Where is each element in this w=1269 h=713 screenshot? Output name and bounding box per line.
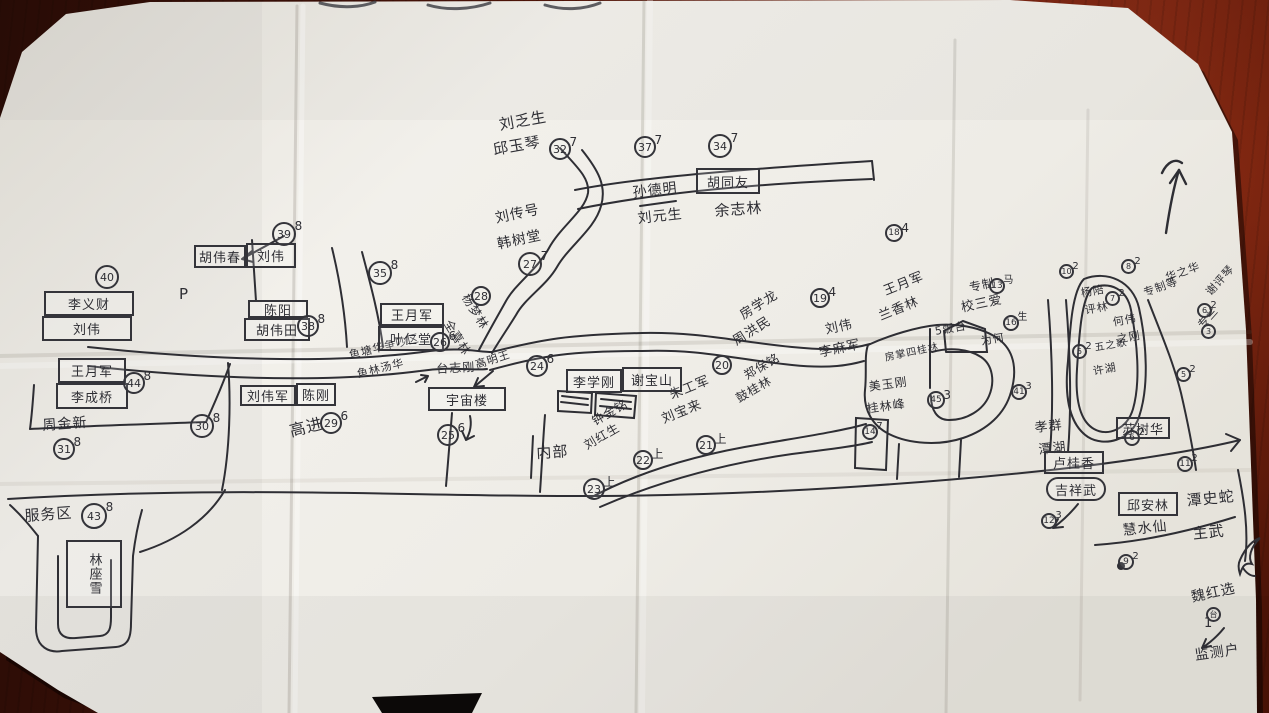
map-label: 谢评琴 (1204, 263, 1236, 297)
marker-number: 29 (324, 418, 338, 429)
marker-number: 22 (636, 455, 650, 466)
name-box: 王月军 (58, 358, 126, 383)
marker-number: 44 (127, 378, 141, 389)
name-box: 胡同友 (696, 168, 760, 194)
marker-note: 3 (1025, 382, 1031, 392)
name-box: 李成桥 (56, 383, 128, 409)
map-label: 桂林峰 (866, 398, 906, 415)
marker-note: 8 (74, 436, 82, 448)
circled-number-marker: 3 (1201, 324, 1216, 339)
marker-note: 2 (1118, 289, 1124, 299)
map-label: 周洪民 (731, 315, 774, 348)
marker-note: 7 (876, 422, 882, 432)
marker-number: 30 (195, 421, 209, 432)
map-label: 潭史蛇 (1186, 489, 1235, 509)
name-box: 李义财 (44, 291, 134, 316)
map-label: 五之歌 (1094, 338, 1128, 354)
marker-note: 2 (1210, 301, 1216, 311)
circled-number-marker: 112 (1177, 456, 1193, 472)
map-label: 兰香林 (877, 295, 921, 323)
circled-number-marker: 358 (368, 261, 392, 285)
map-label: 邱玉琴 (492, 135, 542, 158)
marker-number: 28 (474, 291, 488, 302)
circled-number-marker: 453 (927, 391, 945, 409)
marker-note: 2 (1189, 365, 1195, 375)
circled-number-marker: 256 (437, 424, 459, 446)
map-label: 台志刚 (436, 361, 476, 375)
circled-number-marker: 413 (1011, 384, 1027, 400)
circled-number-marker: 22上 (633, 450, 653, 470)
map-label: 内部 (536, 444, 569, 461)
name-box: 吉祥武 (1046, 477, 1106, 501)
marker-number: 23 (587, 484, 601, 495)
marker-note: 上 (714, 433, 726, 445)
name-box: 李学刚 (566, 369, 622, 393)
circled-number-marker: 40 (95, 265, 119, 289)
circled-number-marker: 398 (272, 222, 296, 246)
marker-number: 6 (1129, 434, 1135, 443)
map-label: 5饭台 (934, 320, 967, 336)
marker-number: 13 (991, 282, 1002, 291)
marker-number: 11 (1179, 460, 1190, 469)
marker-note: 7 (655, 134, 663, 146)
circled-number-marker: 184 (885, 224, 903, 242)
map-label: 主武 (1192, 524, 1225, 542)
marker-number: 14 (864, 428, 875, 437)
circled-number-marker: 62 (1124, 430, 1140, 446)
marker-number: 41 (1013, 388, 1024, 397)
map-label: 鱼林汤华 (356, 357, 405, 379)
marker-note: 2 (1132, 552, 1138, 562)
map-label: 刘宝来 (660, 398, 704, 426)
circled-number-marker: 377 (634, 136, 656, 158)
circled-number-marker: 296 (320, 412, 342, 434)
map-label: 杨陪 (1080, 284, 1106, 299)
marker-number: 43 (87, 511, 101, 522)
marker-note: 上 (651, 448, 663, 460)
marker-number: 台 (1210, 611, 1218, 619)
marker-note: 6 (448, 330, 456, 342)
circled-number-marker: 82 (1121, 259, 1136, 274)
circled-number-marker: 72 (1105, 291, 1120, 306)
marker-note: 4 (901, 222, 909, 234)
name-box: 胡伟春 (194, 245, 246, 268)
circled-number-marker: 16生 (1003, 315, 1019, 331)
marker-number: 37 (638, 142, 652, 153)
name-box: 卢桂香 (1044, 451, 1104, 474)
name-box: 刘伟军 (240, 385, 296, 406)
marker-number: 32 (553, 144, 567, 155)
marker-number: 21 (699, 440, 713, 451)
circled-number-marker: 28 (471, 286, 491, 306)
circled-number-marker: 62 (1197, 303, 1212, 318)
marker-note: 2 (1191, 454, 1197, 464)
map-label: 高明王 (474, 349, 512, 371)
map-label: 周金新 (42, 416, 88, 433)
marker-number: 38 (301, 321, 315, 332)
marker-number: 24 (530, 361, 544, 372)
marker-number: 5 (1077, 348, 1082, 356)
map-label: 魏红选 (1190, 582, 1237, 605)
marker-number: 34 (713, 141, 727, 152)
map-label: 余志林 (714, 201, 763, 219)
marker-note: 2 (1072, 262, 1078, 272)
marker-number: 9 (1123, 558, 1129, 567)
circled-number-marker: 123 (1041, 513, 1057, 529)
marker-number: 19 (813, 293, 827, 304)
map-label: 何伟 (1112, 313, 1138, 328)
marker-number: 10 (1061, 268, 1071, 276)
marker-note: 8 (213, 412, 221, 424)
circled-number-marker: 266 (430, 332, 450, 352)
marker-note: 7 (570, 136, 578, 148)
marker-number: 3 (1206, 328, 1211, 336)
circled-number-marker: 347 (708, 134, 732, 158)
circled-number-marker: 327 (549, 138, 571, 160)
marker-number: 45 (930, 396, 941, 405)
marker-note: 3 (943, 389, 951, 401)
marker-note: 上 (604, 476, 616, 488)
marker-note: 7 (731, 132, 739, 144)
marker-number: 27 (523, 259, 537, 270)
circled-number-marker: 52 (1072, 344, 1087, 359)
map-label: 慧水仙 (1122, 519, 1168, 538)
marker-number: 26 (433, 337, 447, 348)
circled-number-marker: 318 (53, 438, 75, 460)
map-label: 李麻军 (818, 338, 862, 359)
map-label: 韩树堂 (496, 229, 543, 252)
marker-number: 5 (1181, 371, 1186, 379)
map-label: 王月军 (882, 270, 926, 298)
marker-number: 12 (1043, 517, 1054, 526)
circled-number-marker: 23上 (583, 478, 605, 500)
marker-note: 6 (547, 353, 555, 365)
marker-number: 40 (100, 272, 114, 283)
circled-number-marker: 308 (190, 414, 214, 438)
circled-number-marker: 台 (1206, 607, 1221, 622)
marker-number: 35 (373, 268, 387, 279)
circled-number-marker: 147 (862, 424, 878, 440)
map-label: 为何 (980, 332, 1006, 347)
marker-note: 2 (1085, 342, 1091, 352)
marker-number: 18 (888, 229, 899, 238)
name-box: 陈刚 (296, 383, 336, 406)
name-box: 刘伟 (42, 316, 132, 341)
map-label: 专制等 (1142, 276, 1180, 299)
map-label: 刘乏生 (498, 110, 548, 133)
marker-note: 8 (295, 220, 303, 232)
map-label: 刘红生 (582, 421, 622, 451)
map-label: P (179, 287, 189, 302)
map-label: 监测户 (1194, 643, 1241, 663)
name-box: 邱安林 (1118, 492, 1178, 516)
marker-number: 25 (441, 430, 455, 441)
circled-number-marker: 246 (526, 355, 548, 377)
name-box: 林座雪 (66, 540, 122, 608)
map-photo: 刘乏生邱玉琴孙德明刘元生余志林刘传号韩树堂杨梦林全喜林P台志刚高明王高进鱼塘华争… (0, 0, 1269, 713)
marker-note: 8 (144, 370, 152, 382)
map-label: 刘传号 (494, 203, 541, 226)
circled-number-marker: 448 (123, 372, 145, 394)
marker-number: 31 (57, 444, 71, 455)
circled-number-marker: 438 (81, 503, 107, 529)
name-box: 王月军 (380, 303, 444, 326)
marker-note: 8 (318, 313, 326, 325)
circled-number-marker: 277 (518, 252, 542, 276)
map-label: 美玉刚 (868, 376, 908, 393)
name-box: 陈阳 (248, 300, 308, 318)
map-label: 刘元生 (637, 207, 683, 226)
map-label: 服务区 (24, 506, 73, 524)
map-label: 校三爱 (960, 293, 1004, 314)
marker-note: 2 (1134, 257, 1140, 267)
marker-note: 8 (391, 259, 399, 271)
marker-note: 8 (106, 501, 114, 513)
circled-number-marker: 102 (1059, 264, 1074, 279)
marker-note: 4 (828, 286, 836, 298)
circled-number-marker: 13马 (989, 278, 1005, 294)
name-box: 宇宙楼 (428, 387, 506, 411)
name-box: 谢宝山 (622, 367, 682, 392)
circled-number-marker: 20 (712, 355, 732, 375)
marker-note: 6 (341, 410, 349, 422)
map-label: 孝群 (1034, 419, 1063, 435)
marker-number: 7 (1110, 295, 1115, 303)
marker-number: 20 (715, 360, 729, 371)
marker-number: 8 (1126, 263, 1131, 271)
marker-note: 3 (1055, 511, 1061, 521)
marker-note: 6 (458, 422, 466, 434)
marker-note: 7 (541, 250, 549, 262)
circled-number-marker: 92 (1118, 554, 1134, 570)
marker-note: 生 (1017, 313, 1027, 323)
map-label: 刘伟 (824, 318, 854, 337)
map-label: 孙德明 (632, 181, 678, 200)
circled-number-marker: 388 (297, 315, 319, 337)
marker-number: 39 (277, 229, 291, 240)
circled-number-marker: 52 (1176, 367, 1191, 382)
map-label: 房掌四桂林 (884, 343, 940, 364)
map-label: 许湖 (1092, 362, 1118, 377)
circled-number-marker: 21上 (696, 435, 716, 455)
marker-note: 马 (1003, 276, 1013, 286)
circled-number-marker: 194 (810, 288, 830, 308)
annotation-layer: 刘乏生邱玉琴孙德明刘元生余志林刘传号韩树堂杨梦林全喜林P台志刚高明王高进鱼塘华争… (0, 0, 1269, 713)
marker-number: 16 (1005, 319, 1016, 328)
marker-note: 2 (1138, 428, 1144, 438)
marker-number: 6 (1202, 307, 1207, 315)
name-box: 刘伟 (246, 243, 296, 268)
